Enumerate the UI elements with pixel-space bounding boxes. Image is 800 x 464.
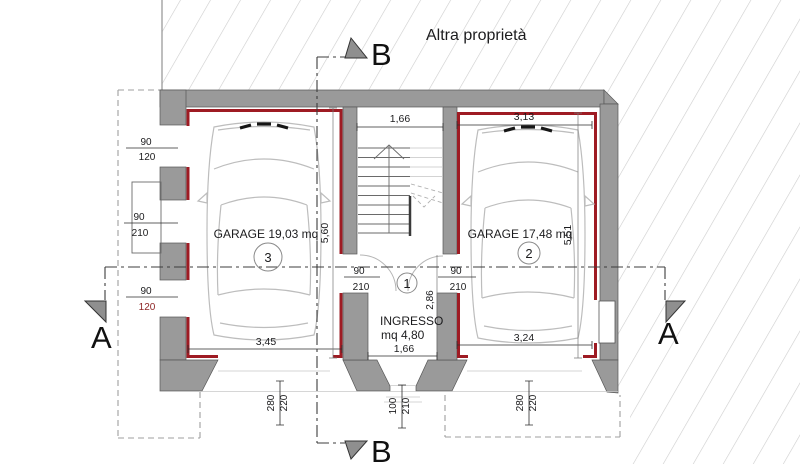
dim-landing-door-3-width: 90 — [353, 266, 365, 277]
garage-3-number: 3 — [264, 250, 271, 265]
dim-left-upper-window-height: 120 — [139, 152, 156, 163]
right-wall-niche — [599, 301, 615, 343]
dim-left-lower-window-height: 120 — [139, 302, 156, 313]
garage-3-label: GARAGE 19,03 mq — [214, 227, 319, 241]
staircase — [358, 145, 443, 236]
floor-plan-drawing: B B A A Altra proprietà GARAGE 19,03 mq … — [0, 0, 800, 464]
garage-2-label: GARAGE 17,48 mq — [468, 227, 573, 241]
dim-landing-door-3-height: 210 — [353, 282, 370, 293]
dim-stairwell-width-top: 1,66 — [390, 113, 411, 125]
dim-left-door-width: 90 — [133, 212, 145, 223]
dim-entrance-door-height: 210 — [401, 397, 412, 414]
dim-ingresso-depth: 2,86 — [425, 290, 436, 310]
dim-landing-door-2-width: 90 — [450, 266, 462, 277]
dim-left-lower-window-width: 90 — [140, 286, 152, 297]
ingresso-label: INGRESSO — [380, 314, 443, 328]
other-property-label: Altra proprietà — [426, 27, 527, 44]
door-swings — [360, 255, 443, 291]
dim-garage-3-width: 3,45 — [256, 336, 277, 348]
dim-garage-2-door-height: 220 — [528, 394, 539, 411]
ingresso-number: 1 — [403, 276, 410, 291]
dim-left-upper-window-width: 90 — [140, 137, 152, 148]
section-arrow-b-bottom — [345, 441, 367, 459]
dim-garage-2-door-width: 280 — [515, 394, 526, 411]
dim-ingresso-width: 1,66 — [394, 343, 415, 355]
dim-garage-2-width: 3,24 — [514, 332, 535, 344]
section-label-a-right: A — [658, 316, 679, 351]
dim-garage-2-depth: 5,51 — [562, 225, 574, 246]
dim-garage-3-depth: 5,60 — [319, 223, 331, 244]
building-walls — [160, 90, 618, 393]
dim-left-door-height: 210 — [132, 228, 149, 239]
dim-garage-3-door-height: 220 — [279, 394, 290, 411]
section-marker-a-left: A — [85, 301, 112, 355]
garage-2-number: 2 — [525, 246, 532, 261]
dim-garage-3-door-width: 280 — [266, 394, 277, 411]
ingresso-area-label: mq 4,80 — [381, 328, 425, 342]
section-marker-b-bottom: B — [345, 434, 392, 464]
dim-landing-door-2-height: 210 — [450, 282, 467, 293]
section-label-a-left: A — [91, 320, 112, 355]
section-label-b-bottom: B — [371, 434, 392, 464]
dim-garage-2-width-top: 3,13 — [514, 111, 535, 123]
floor-plan-page: B B A A Altra proprietà GARAGE 19,03 mq … — [0, 0, 800, 464]
dim-entrance-door-width: 100 — [388, 397, 399, 414]
section-label-b-top: B — [371, 37, 392, 72]
section-arrow-a-left — [85, 301, 106, 322]
